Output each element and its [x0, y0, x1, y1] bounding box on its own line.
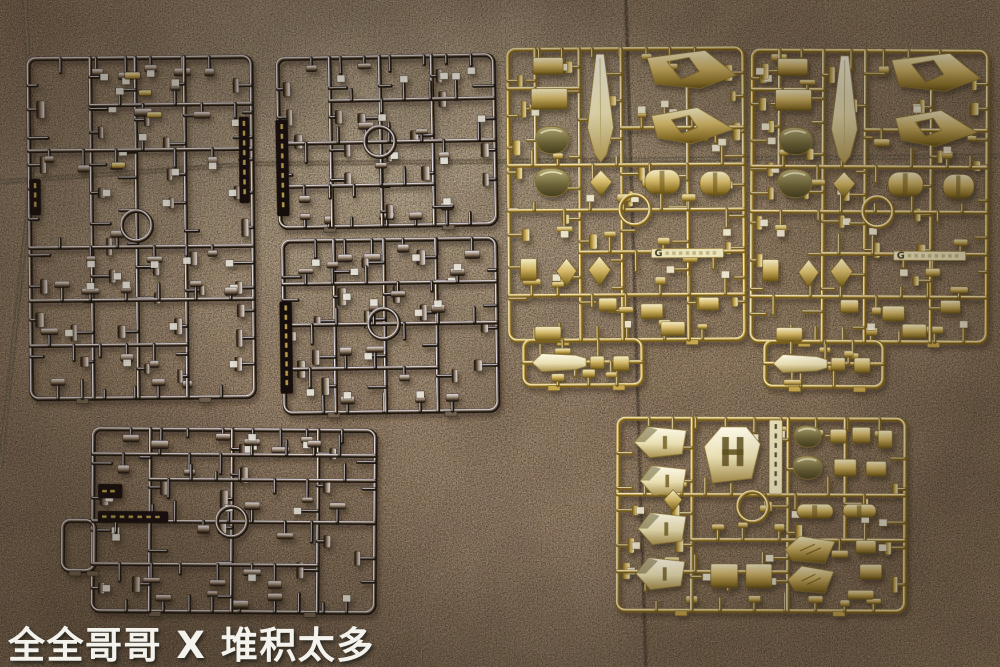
- photo-vignette: [0, 0, 1000, 667]
- photo-stage: GG 全全哥哥 X 堆积太多: [0, 0, 1000, 667]
- photo-canvas: GG 全全哥哥 X 堆积太多: [0, 0, 1000, 667]
- watermark-text: 全全哥哥 X 堆积太多: [7, 624, 375, 667]
